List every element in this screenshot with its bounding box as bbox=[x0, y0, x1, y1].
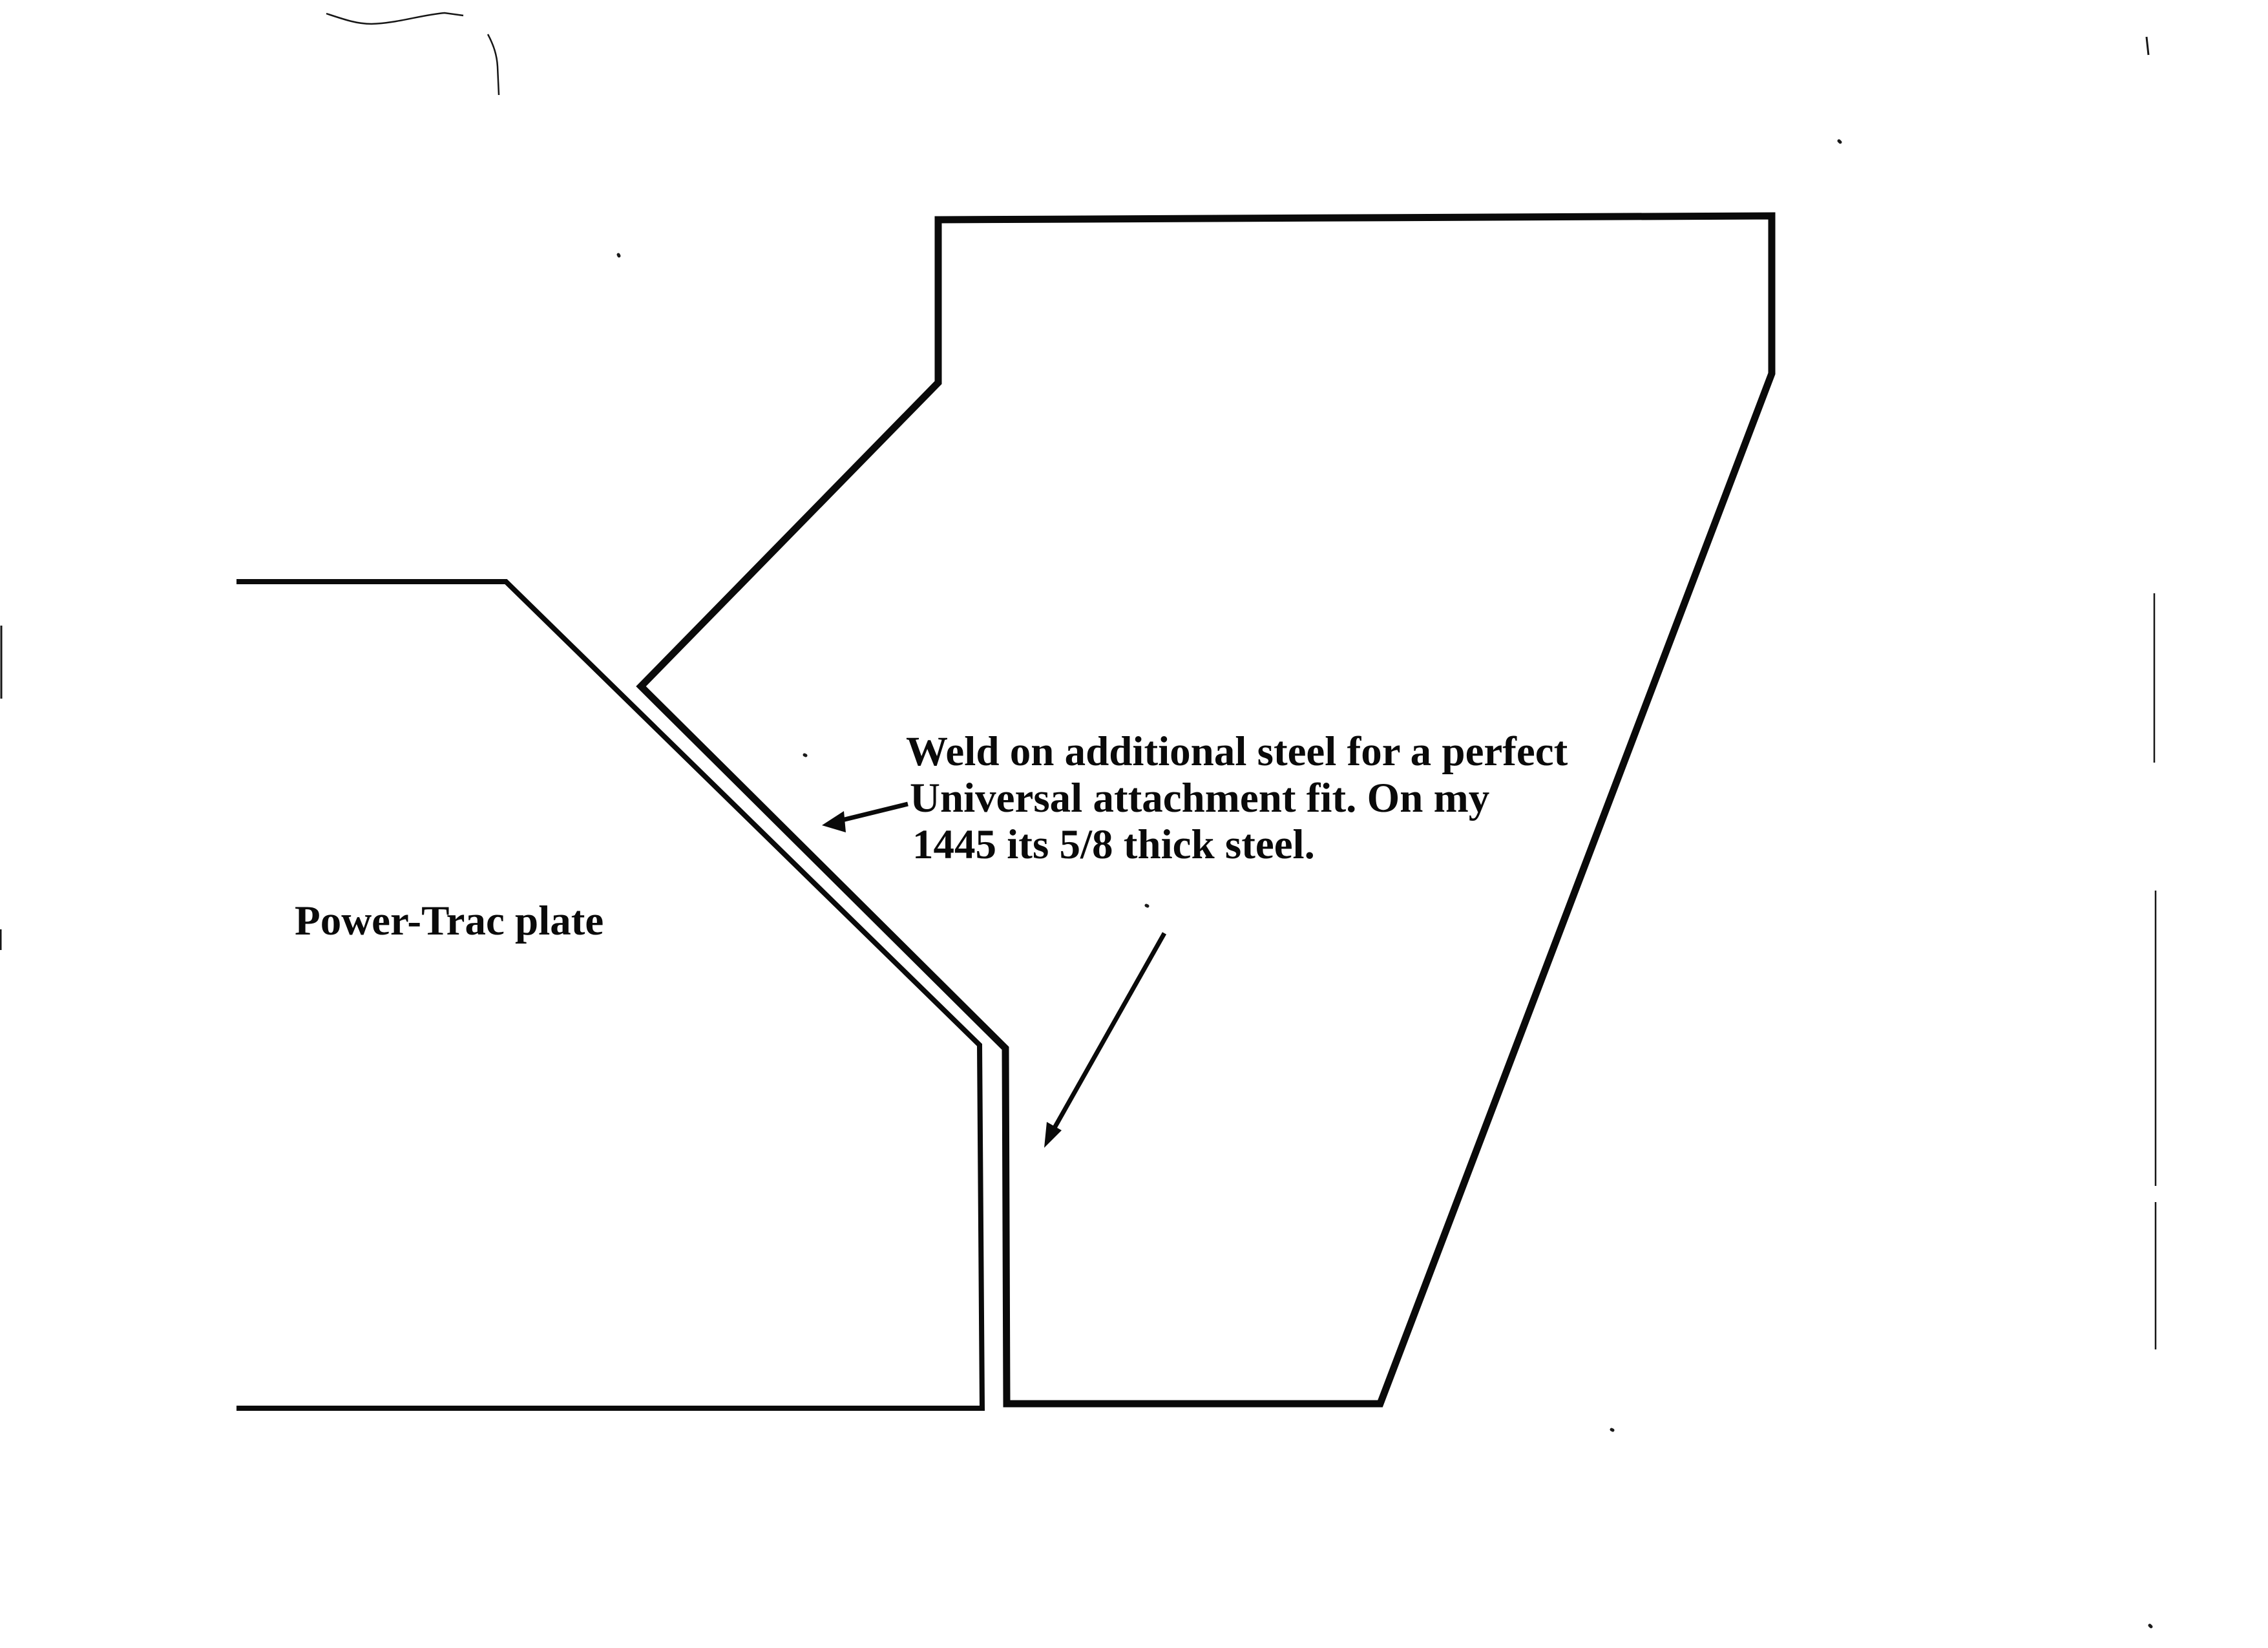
scanned-diagram-page: Weld on additional steel for a perfect U… bbox=[0, 0, 2268, 1648]
scan-speck bbox=[618, 255, 619, 256]
annotation-line-1: Weld on additional steel for a perfect bbox=[906, 728, 1568, 775]
gap-pointer-arrowhead-icon bbox=[1044, 1122, 1062, 1148]
power-trac-label: Power-Trac plate bbox=[295, 898, 604, 944]
weld-annotation-note: Weld on additional steel for a perfect U… bbox=[906, 728, 1568, 868]
scan-artifact-hairline-curve bbox=[326, 13, 463, 24]
scan-speck bbox=[804, 755, 806, 755]
gap-pointer-arrow-shaft bbox=[1055, 933, 1164, 1128]
annotation-line-2: Universal attachment fit. On my bbox=[906, 775, 1568, 821]
scan-speck bbox=[1839, 141, 1840, 142]
weld-seam-leader-arrowhead-icon bbox=[822, 811, 846, 832]
power-trac-plate-outline bbox=[236, 582, 982, 1408]
annotation-line-3: 1445 its 5/8 thick steel. bbox=[906, 821, 1568, 868]
scan-speck bbox=[1612, 1430, 1613, 1430]
scan-artifact-right-tick bbox=[2147, 37, 2148, 55]
scan-speck bbox=[2150, 1625, 2151, 1627]
scan-artifact-pen-arc bbox=[488, 34, 499, 95]
scan-speck bbox=[1146, 905, 1148, 906]
weld-seam-leader-arrow-shaft bbox=[837, 804, 908, 821]
